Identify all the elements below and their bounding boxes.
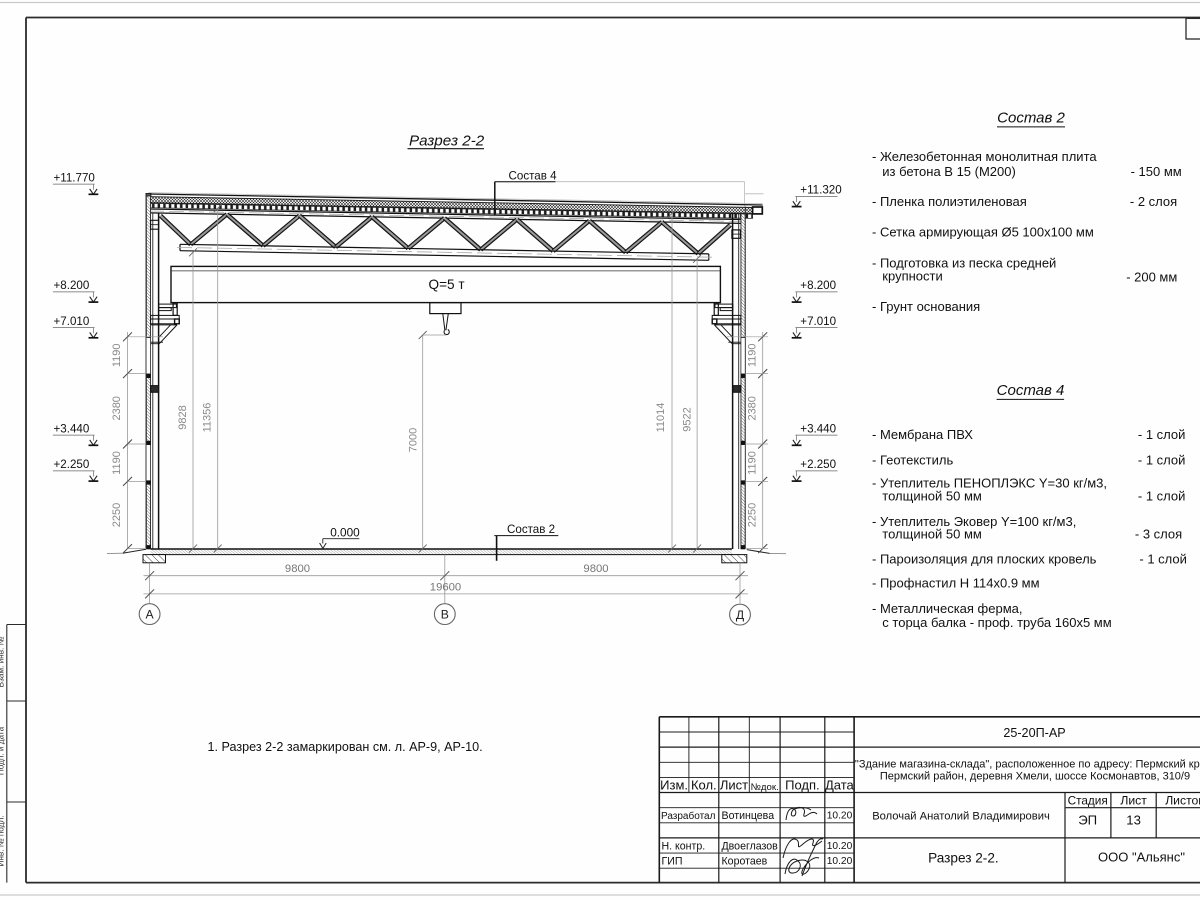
svg-text:- 3 слоя: - 3 слоя [1135, 526, 1182, 541]
svg-text:+8.200: +8.200 [54, 279, 90, 292]
svg-text:Подп. и дата: Подп. и дата [0, 726, 5, 775]
svg-text:- 200 мм: - 200 мм [1126, 270, 1177, 285]
svg-text:Кол.: Кол. [691, 778, 717, 793]
svg-text:10.20: 10.20 [827, 811, 853, 822]
svg-text:Q=5 т: Q=5 т [429, 277, 465, 292]
svg-text:Стадия: Стадия [1068, 794, 1108, 808]
svg-text:10.20: 10.20 [827, 856, 853, 867]
svg-text:- Грунт основания: - Грунт основания [872, 299, 980, 314]
svg-text:+7.010: +7.010 [800, 315, 836, 328]
svg-text:1190: 1190 [111, 451, 123, 475]
svg-text:Лист: Лист [720, 778, 748, 793]
svg-text:- Пароизоляция для плоских кро: - Пароизоляция для плоских кровель [872, 551, 1097, 566]
svg-text:+11.320: +11.320 [800, 184, 841, 197]
svg-text:Изм.: Изм. [660, 778, 688, 793]
svg-text:9828: 9828 [177, 405, 189, 429]
svg-text:13: 13 [1126, 813, 1141, 828]
svg-text:+3.440: +3.440 [54, 422, 90, 435]
svg-text:Листов: Листов [1165, 794, 1200, 808]
svg-text:крупности: крупности [882, 269, 942, 284]
svg-text:ООО "Альянс": ООО "Альянс" [1098, 849, 1185, 864]
svg-text:- Сетка армирующая Ø5 100х100: - Сетка армирующая Ø5 100х100 мм [872, 225, 1094, 240]
svg-text:2250: 2250 [111, 503, 123, 527]
svg-text:А: А [146, 608, 155, 622]
svg-text:ГИП: ГИП [662, 855, 683, 867]
svg-text:толщиной 50 мм: толщиной 50 мм [882, 526, 982, 541]
svg-text:19600: 19600 [430, 581, 461, 593]
svg-text:+7.010: +7.010 [54, 315, 90, 328]
svg-text:- Пленка полиэтиленовая: - Пленка полиэтиленовая [872, 194, 1027, 209]
svg-text:Состав 2: Состав 2 [997, 110, 1065, 127]
svg-text:- 150 мм: - 150 мм [1131, 164, 1182, 179]
svg-text:- Металлическая ферма,: - Металлическая ферма, [872, 601, 1022, 616]
svg-text:7000: 7000 [407, 428, 419, 452]
svg-text:+11.770: +11.770 [54, 171, 95, 184]
svg-text:25-20П-АР: 25-20П-АР [1003, 726, 1065, 740]
svg-text:- 1 слой: - 1 слой [1138, 488, 1186, 503]
svg-text:толщиной 50 мм: толщиной 50 мм [882, 488, 982, 503]
svg-text:- 2 слоя: - 2 слоя [1130, 194, 1177, 209]
svg-text:Д: Д [736, 608, 745, 622]
svg-text:Н. контр.: Н. контр. [662, 840, 706, 852]
svg-text:- Железобетонная монолитная п: - Железобетонная монолитная плита [872, 149, 1097, 164]
svg-text:Волочай Анатолий Владимирович: Волочай Анатолий Владимирович [872, 810, 1050, 822]
svg-text:- Мембрана ПВХ: - Мембрана ПВХ [872, 427, 973, 442]
svg-text:Лист: Лист [1120, 794, 1147, 808]
svg-text:+2.250: +2.250 [54, 458, 90, 471]
svg-text:- Профнастил Н 114х0.9 мм: - Профнастил Н 114х0.9 мм [872, 576, 1040, 591]
svg-text:В: В [441, 608, 449, 622]
svg-text:- 1 слой: - 1 слой [1139, 551, 1187, 566]
svg-text:+2.250: +2.250 [800, 458, 836, 471]
svg-text:Состав 4: Состав 4 [509, 170, 558, 183]
svg-text:Состав 2: Состав 2 [507, 523, 555, 536]
svg-text:Инв. № подл.: Инв. № подл. [0, 816, 5, 867]
svg-text:1190: 1190 [747, 451, 759, 475]
svg-text:Разрез 2-2: Разрез 2-2 [409, 133, 485, 150]
svg-text:9800: 9800 [285, 563, 310, 575]
svg-text:+3.440: +3.440 [800, 422, 836, 435]
svg-text:№док.: №док. [751, 782, 779, 793]
svg-text:Подп.: Подп. [785, 778, 820, 793]
svg-text:Состав 4: Состав 4 [997, 382, 1065, 399]
svg-text:Дата: Дата [825, 778, 855, 793]
svg-text:из бетона В 15 (М200): из бетона В 15 (М200) [882, 164, 1016, 179]
svg-text:с торца балка - проф. труба 16: с торца балка - проф. труба 160х5 мм [882, 615, 1111, 630]
svg-text:11356: 11356 [202, 403, 214, 433]
svg-text:Разработал: Разработал [661, 810, 716, 822]
svg-text:1190: 1190 [111, 343, 123, 367]
svg-text:2380: 2380 [747, 396, 759, 420]
svg-text:9522: 9522 [681, 407, 693, 431]
svg-text:10.20: 10.20 [827, 841, 853, 852]
svg-text:"Здание магазина-склада", расп: "Здание магазина-склада", расположенное … [855, 759, 1200, 771]
svg-text:Вотинцева: Вотинцева [722, 810, 775, 822]
svg-text:- 1 слой: - 1 слой [1138, 427, 1186, 442]
svg-text:- 1 слой: - 1 слой [1138, 452, 1186, 467]
svg-text:1190: 1190 [747, 343, 759, 367]
svg-text:+8.200: +8.200 [800, 279, 836, 292]
svg-text:11014: 11014 [655, 403, 667, 433]
svg-text:ЭП: ЭП [1078, 813, 1097, 828]
svg-text:- Геотекстиль: - Геотекстиль [872, 452, 953, 467]
svg-text:Пермский район, деревня Хмели,: Пермский район, деревня Хмели, шоссе Кос… [880, 771, 1190, 783]
svg-text:Взам. инв. №: Взам. инв. № [0, 636, 5, 687]
svg-text:1. Разрез 2-2 замаркирован см.: 1. Разрез 2-2 замаркирован см. л. АР-9, … [208, 740, 483, 754]
svg-text:2250: 2250 [747, 503, 759, 527]
svg-text:0.000: 0.000 [330, 525, 360, 539]
svg-text:Двоеглазов: Двоеглазов [722, 840, 779, 852]
svg-text:Коротаев: Коротаев [722, 855, 768, 867]
svg-text:2380: 2380 [111, 396, 123, 420]
svg-text:9800: 9800 [583, 563, 608, 575]
svg-text:Разрез 2-2.: Разрез 2-2. [928, 850, 999, 865]
